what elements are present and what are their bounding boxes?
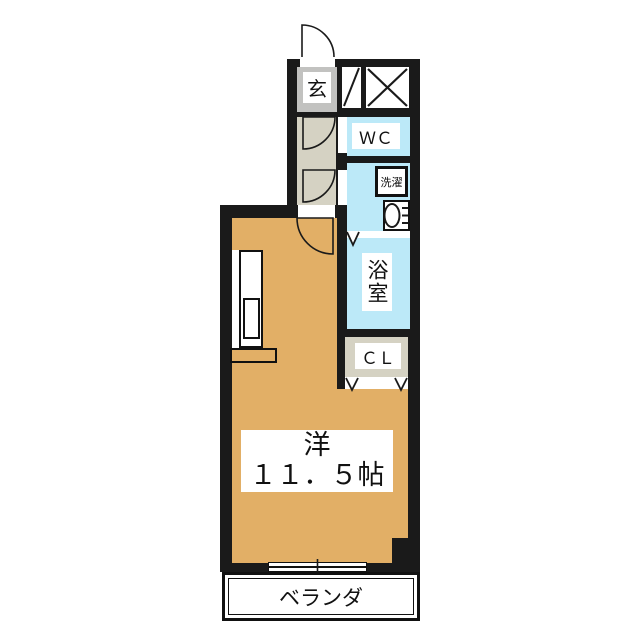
floorplan-canvas: 玄 ＷＣ 洗濯 浴室 ＣＬ 洋 １１．５帖 ベランダ <box>0 0 640 640</box>
cross-brace-box <box>366 67 409 108</box>
hallway-divider-wall <box>297 112 336 117</box>
kitchen-sink <box>243 298 260 339</box>
bathroom-label: 浴室 <box>362 253 392 311</box>
main-room-size: １１．５帖 <box>250 461 385 491</box>
room-door-opening <box>298 205 335 218</box>
kitchen-step <box>230 348 277 363</box>
entrance-label: 玄 <box>303 72 331 103</box>
kitchen-counter-strip <box>232 250 239 348</box>
diagonal-shaft-box <box>342 67 361 108</box>
closet-folding-door-strip <box>345 377 408 389</box>
wc-label: ＷＣ <box>352 123 400 149</box>
washbasin-box <box>383 200 410 231</box>
washing-machine-box: 洗濯 <box>375 166 408 197</box>
washroom-door-opening <box>338 170 347 205</box>
main-room-label: 洋 １１．５帖 <box>241 430 393 492</box>
main-room-name: 洋 <box>304 431 331 461</box>
wc-door-opening <box>338 117 347 153</box>
closet-label: ＣＬ <box>355 343 401 369</box>
entrance-door-leaf <box>300 53 335 68</box>
hallway-floor <box>297 112 336 205</box>
sliding-window-pane-bottom <box>268 567 367 572</box>
bathroom-door-threshold <box>347 231 410 238</box>
pillar <box>392 538 420 572</box>
balcony-label: ベランダ <box>232 580 410 613</box>
